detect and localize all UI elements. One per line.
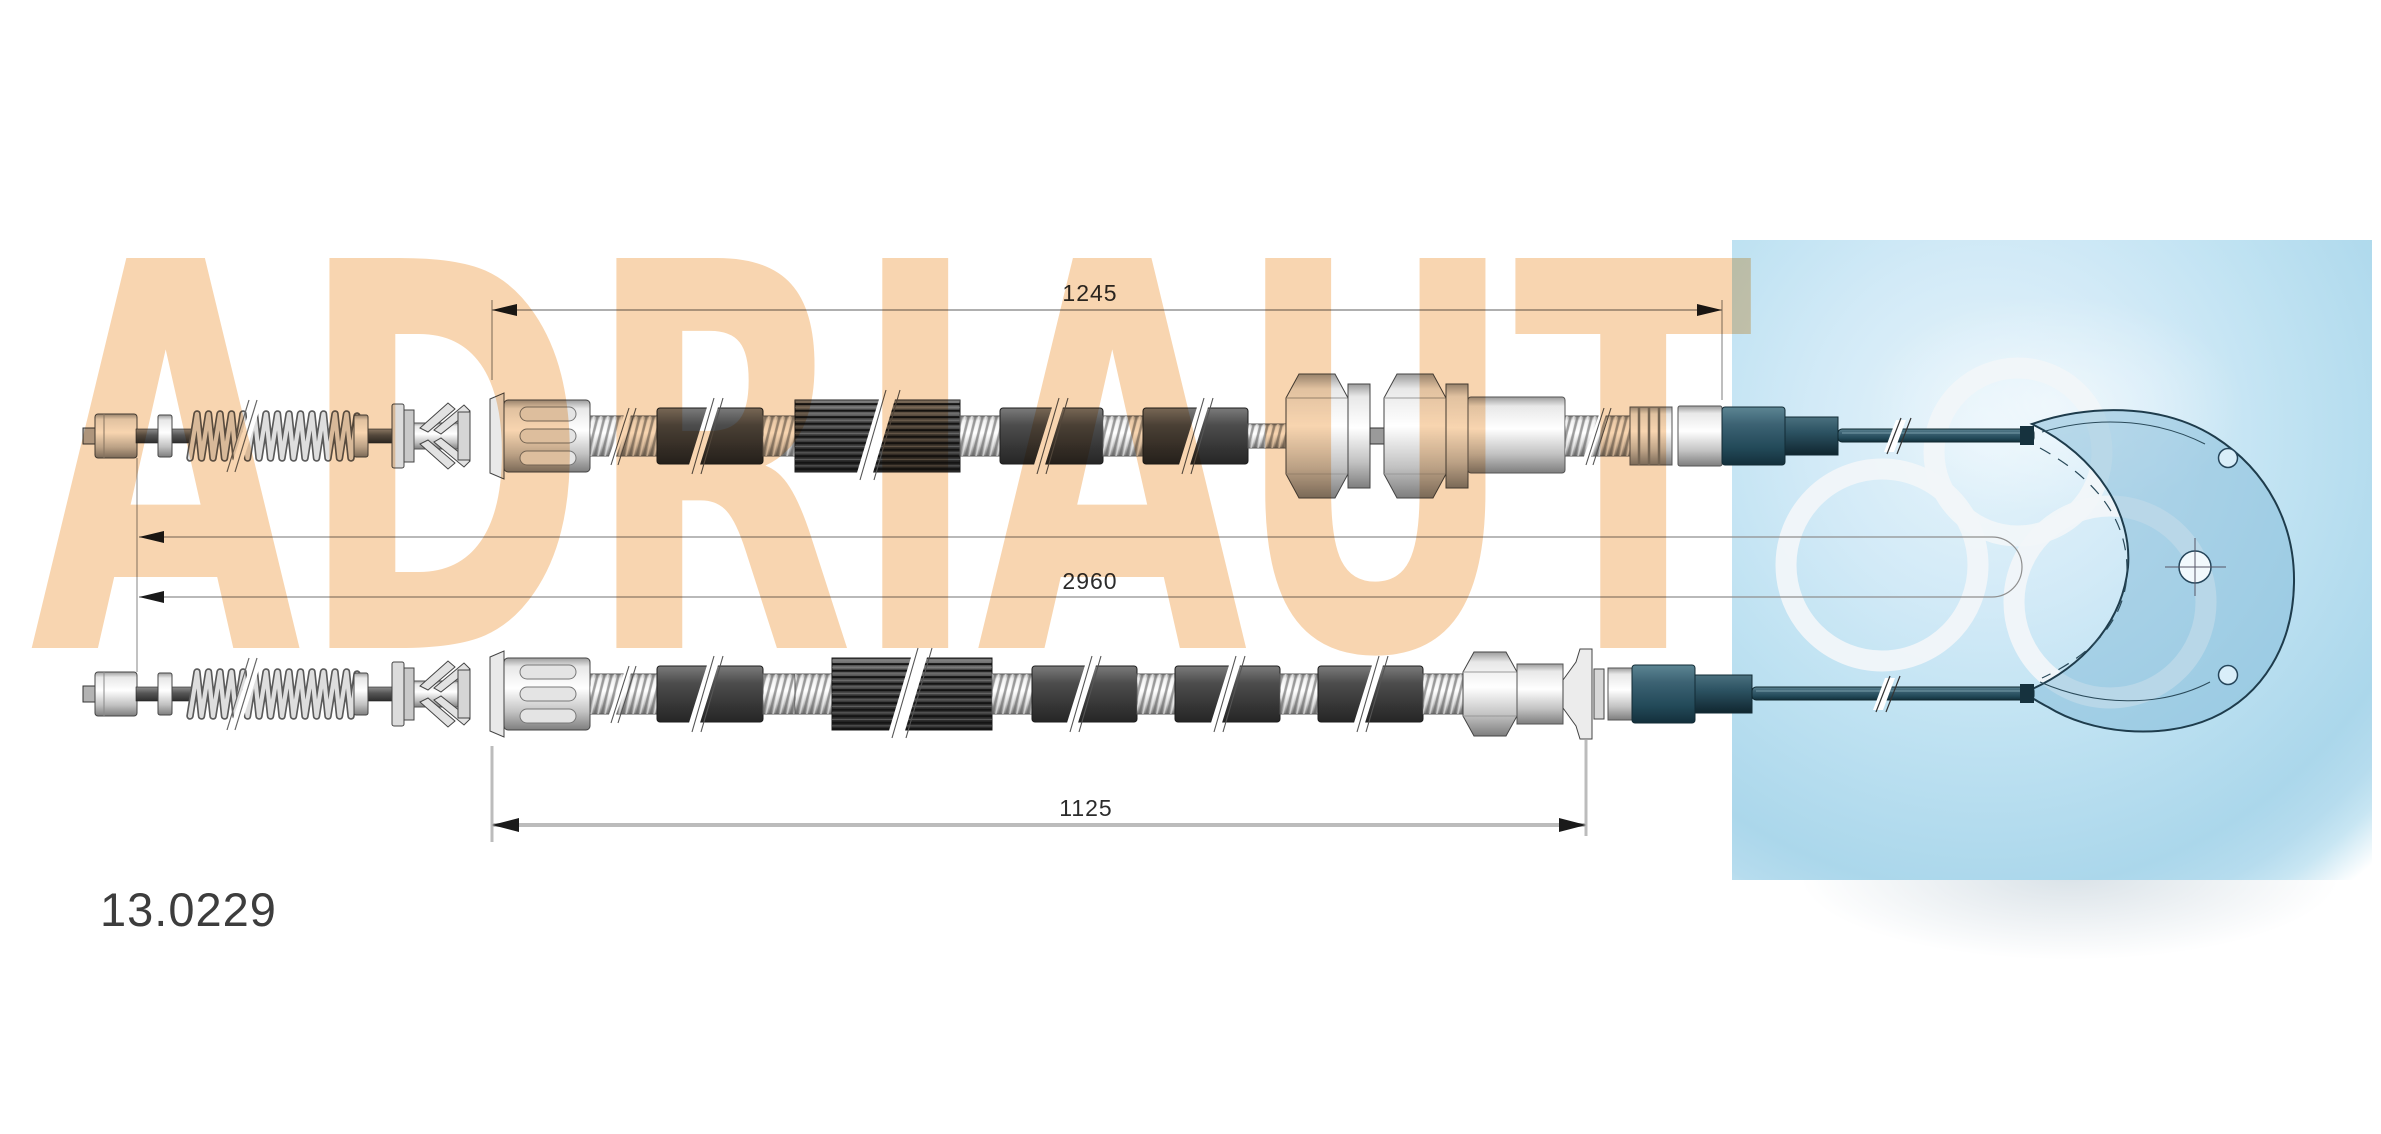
cable-boot	[1722, 407, 1785, 465]
dimension-annotations: 1245 2960 1125	[137, 280, 2022, 842]
upper-cable-left-section	[83, 393, 795, 479]
outer-sleeve-tube	[1468, 397, 1565, 473]
abutment-flange	[1563, 649, 1592, 739]
inner-cable-wire	[1838, 429, 2034, 442]
ribbed-ferrule	[1630, 407, 1672, 465]
cable-boot	[1632, 665, 1695, 723]
plate-hole-bottom	[2219, 666, 2238, 685]
equalizer-plate	[2029, 410, 2294, 731]
dimension-lower-label: 1125	[1059, 795, 1112, 821]
plate-hole-top	[2219, 449, 2238, 468]
hex-fitting	[1463, 652, 1517, 736]
part-number-label: 13.0229	[100, 883, 277, 936]
technical-drawing: 1245 2960 1125	[0, 0, 2381, 1134]
adjuster-locknut	[1384, 374, 1446, 498]
dimension-upper-label: 1245	[1062, 280, 1117, 306]
dimension-total-label: 2960	[1062, 568, 1117, 594]
lower-cable-left-section	[83, 651, 795, 737]
adjuster-nut	[1286, 374, 1348, 498]
